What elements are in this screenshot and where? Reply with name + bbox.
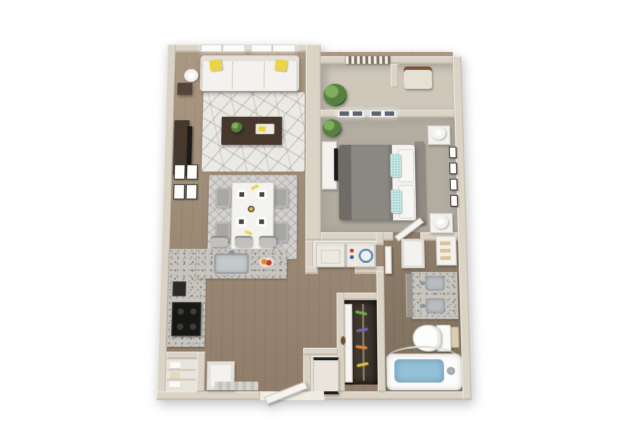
bedroom-window-2-pane bbox=[371, 111, 382, 117]
placemat-3 bbox=[236, 217, 247, 227]
pantry-linens-2 bbox=[170, 372, 180, 378]
cooktop bbox=[171, 302, 201, 336]
linen-towels bbox=[440, 240, 451, 260]
living-wall-frame-3 bbox=[173, 184, 185, 199]
sofa-pillow-yellow-1 bbox=[209, 59, 222, 72]
wall-balcony-top-right bbox=[390, 56, 453, 64]
doormat bbox=[214, 382, 258, 391]
vanity-sink-1 bbox=[425, 276, 445, 291]
vanity-sink-2 bbox=[426, 298, 446, 313]
bedroom-window-2-pane-b bbox=[384, 111, 395, 117]
dining-chair-3 bbox=[273, 188, 288, 208]
balcony-railing bbox=[346, 56, 391, 64]
bed-pillow-teal-2 bbox=[391, 190, 402, 214]
bed-pillow-teal-1 bbox=[390, 154, 401, 177]
bedroom-wall-frame-3 bbox=[450, 179, 458, 191]
refrigerator bbox=[313, 357, 339, 394]
pantry-linens-1 bbox=[170, 362, 180, 368]
dining-chair-1 bbox=[215, 188, 231, 208]
washer-door-ring bbox=[359, 249, 374, 263]
bedroom-window-1-pane-b bbox=[352, 111, 363, 117]
closet-door bbox=[344, 304, 352, 383]
towel-basket bbox=[451, 327, 459, 348]
floorplan-render bbox=[0, 0, 639, 427]
wall-living-bedroom-divider bbox=[305, 44, 320, 240]
wall-bath-left-a bbox=[376, 232, 384, 245]
lamp-side-table bbox=[177, 83, 192, 95]
bathtub-water bbox=[394, 359, 444, 382]
patio-chair bbox=[404, 66, 433, 88]
bathroom-door-open bbox=[385, 246, 392, 274]
nightstand-lamp-bottom bbox=[433, 215, 448, 229]
living-window-1 bbox=[201, 44, 246, 52]
apartment-plan bbox=[156, 44, 476, 410]
wall-oven bbox=[172, 281, 186, 296]
living-wall-frame-4 bbox=[186, 184, 198, 199]
placemat-1 bbox=[236, 190, 247, 200]
pantry-linens-3 bbox=[170, 382, 180, 388]
wall-laundry-bottom-a bbox=[305, 266, 318, 273]
living-wall-frame-1 bbox=[174, 164, 186, 179]
sofa-pillow-yellow-2 bbox=[274, 59, 288, 71]
bedroom-wall-frame-4 bbox=[450, 195, 458, 207]
vanity-faucet-1 bbox=[420, 281, 425, 285]
kitchen-sink bbox=[214, 253, 249, 273]
placemat-4 bbox=[256, 217, 267, 227]
sink-faucet bbox=[229, 251, 235, 255]
wall-bottom-right bbox=[324, 391, 472, 400]
balcony-divider-stub bbox=[391, 64, 399, 88]
bedroom-window-1-pane bbox=[339, 111, 350, 117]
nightstand-lamp-top bbox=[431, 126, 446, 139]
dryer-door-outline bbox=[321, 250, 340, 264]
living-window-2 bbox=[251, 44, 296, 52]
bedroom-plant bbox=[323, 119, 342, 137]
balcony-plant bbox=[323, 84, 347, 107]
bedroom-tv bbox=[334, 148, 338, 180]
vanity-faucet-2 bbox=[421, 304, 426, 308]
pantry-shelf-line-2 bbox=[167, 379, 196, 381]
vanity-cabinet-front bbox=[406, 274, 414, 317]
wall-pantry-right bbox=[196, 352, 205, 393]
closet-door-pull bbox=[341, 336, 346, 345]
pantry-shelf-line-1 bbox=[167, 369, 196, 371]
bar-stool-1 bbox=[210, 236, 228, 247]
tub-faucet bbox=[447, 367, 455, 375]
wall-bottom-left bbox=[156, 391, 260, 400]
bed-headboard bbox=[415, 141, 426, 224]
fruit-bowl bbox=[259, 257, 275, 267]
wall-fridge-niche-top bbox=[303, 348, 338, 356]
washer-knob-red bbox=[350, 249, 354, 253]
placemat-2 bbox=[257, 190, 268, 200]
bar-stool-3 bbox=[259, 236, 277, 247]
bed-foot-fold bbox=[339, 145, 352, 221]
living-wall-frame-2 bbox=[186, 164, 198, 179]
bedroom-wall-frame-2 bbox=[449, 163, 457, 175]
washer-knob-blue bbox=[350, 255, 354, 259]
centerpiece bbox=[248, 206, 255, 212]
wall-bath-left-b bbox=[376, 271, 385, 392]
bedroom-wall-frame-1 bbox=[449, 147, 457, 159]
bar-stool-2 bbox=[235, 236, 253, 247]
bathroom-storage-cabinet bbox=[401, 239, 425, 269]
